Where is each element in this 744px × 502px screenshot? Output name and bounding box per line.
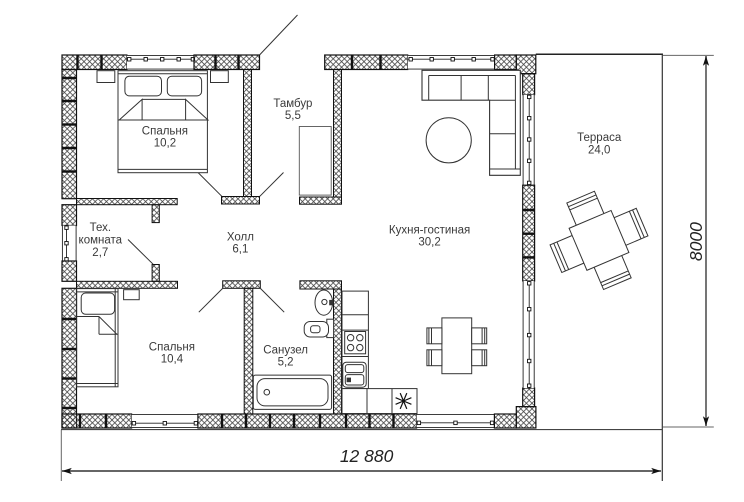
svg-text:Тех.: Тех. [90, 222, 111, 234]
svg-text:8000: 8000 [686, 222, 706, 261]
svg-text:12 880: 12 880 [340, 446, 394, 466]
svg-text:10,4: 10,4 [161, 354, 184, 366]
svg-text:Терраса: Терраса [577, 132, 622, 144]
svg-text:30,2: 30,2 [418, 237, 440, 249]
svg-text:комната: комната [79, 235, 123, 247]
svg-text:6,1: 6,1 [232, 244, 248, 256]
svg-text:2,7: 2,7 [92, 247, 108, 259]
svg-text:5,5: 5,5 [285, 110, 301, 122]
svg-text:Спальня: Спальня [149, 341, 195, 353]
svg-text:Холл: Холл [227, 231, 254, 243]
svg-text:10,2: 10,2 [154, 138, 176, 150]
svg-text:5,2: 5,2 [278, 357, 294, 369]
svg-text:Санузел: Санузел [263, 345, 308, 357]
svg-text:Тамбур: Тамбур [273, 98, 312, 110]
svg-text:24,0: 24,0 [588, 144, 610, 156]
svg-text:Кухня-гостиная: Кухня-гостиная [389, 225, 470, 237]
svg-text:Спальня: Спальня [142, 126, 188, 138]
